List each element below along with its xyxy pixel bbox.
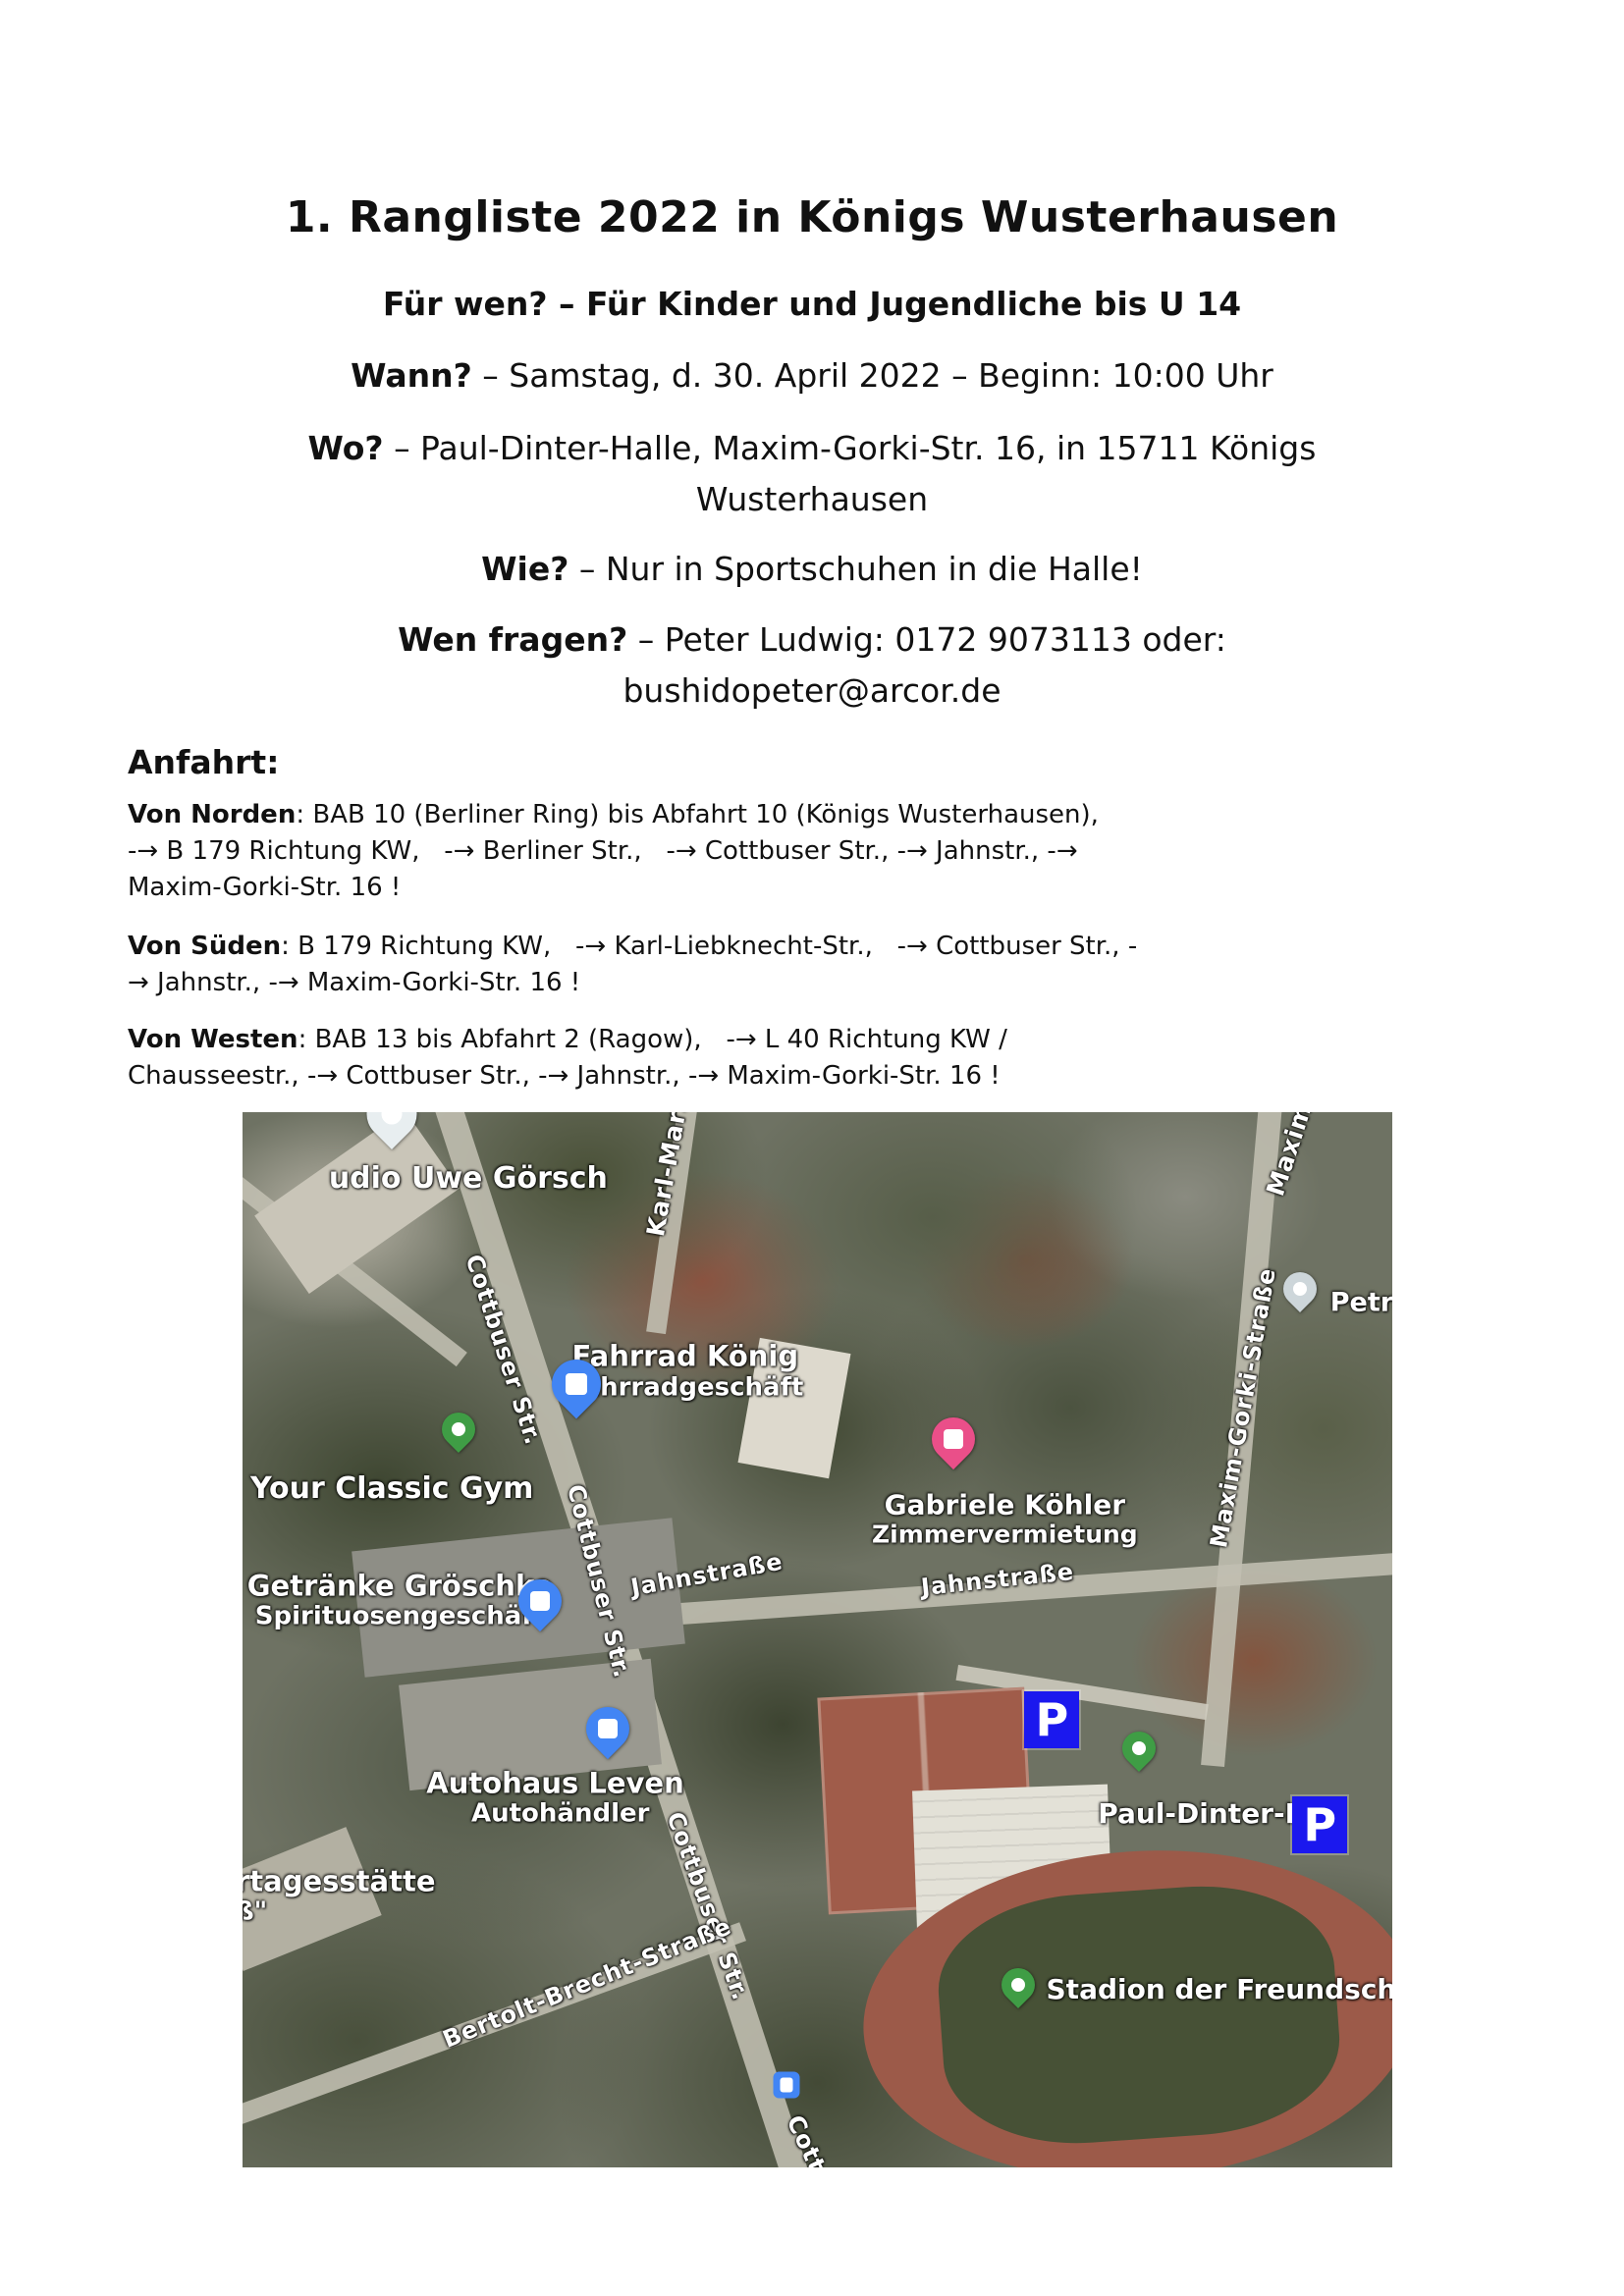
poi-subtitle: Spirituosengeschäft	[247, 1602, 553, 1631]
map-image: Karl-MarxMaximMaxim-Gorki-StraßeCottbuse…	[243, 1112, 1392, 2167]
poi-name: Stadion der Freundschaft	[1047, 1973, 1392, 2005]
petral-pin	[1283, 1272, 1317, 1306]
pin-bulb	[995, 1961, 1042, 2008]
poi-label-2: Your Classic Gym	[250, 1472, 533, 1507]
pin-dot	[1129, 1738, 1149, 1758]
poi-label-3: Petral	[1330, 1287, 1392, 1317]
poi-subtitle: Autohändler	[437, 1799, 684, 1829]
poi-name: Getränke Gröschke	[247, 1569, 553, 1602]
where-text: – Paul-Dinter-Halle, Maxim-Gorki-Str. 16…	[384, 429, 1317, 467]
poi-name: Autohaus Leven	[426, 1766, 683, 1799]
poi-subtitle: ß"	[243, 1897, 436, 1927]
shop-glyph	[598, 1719, 618, 1738]
event-title: 1. Rangliste 2022 in Königs Wusterhausen	[0, 192, 1624, 242]
pin-bulb	[1115, 1725, 1163, 1772]
poi-name: Gabriele Köhler	[885, 1488, 1125, 1521]
poi-subtitle: Fahrradgeschäft	[567, 1373, 803, 1403]
parking-marker-2: P	[1292, 1796, 1347, 1853]
getraenke-marker	[518, 1579, 562, 1623]
where-line: Wo? – Paul-Dinter-Halle, Maxim-Gorki-Str…	[0, 429, 1624, 467]
poi-name: udio Uwe Görsch	[329, 1160, 608, 1195]
audience-line: Für wen? – Für Kinder und Jugendliche bi…	[0, 285, 1624, 323]
route-south-label: Von Süden	[128, 932, 281, 961]
how-line: Wie? – Nur in Sportschuhen in die Halle!	[0, 550, 1624, 588]
poi-label-0: udio Uwe Görsch	[329, 1161, 608, 1196]
poi-name: Fahrrad König	[572, 1340, 799, 1373]
your-classic-gym-pin	[442, 1413, 475, 1446]
pin-bulb	[1276, 1264, 1324, 1311]
where-line-2: Wusterhausen	[0, 480, 1624, 518]
bus-glyph	[780, 2078, 792, 2093]
poi-name: rtagesstätte	[243, 1864, 436, 1897]
pin-dot	[1009, 1975, 1029, 1995]
contact-text: – Peter Ludwig: 0172 9073113 oder:	[627, 620, 1226, 659]
route-west-line-2: Chausseestr., -→ Cottbuser Str., -→ Jahn…	[128, 1061, 1001, 1091]
pin-dot	[1290, 1279, 1310, 1299]
when-label: Wann?	[351, 356, 472, 395]
when-line: Wann? – Samstag, d. 30. April 2022 – Beg…	[0, 356, 1624, 395]
pin-dot	[377, 1112, 406, 1129]
poi-subtitle: Zimmervermietung	[872, 1522, 1138, 1550]
shop-glyph	[530, 1591, 550, 1611]
when-text: – Samstag, d. 30. April 2022 – Beginn: 1…	[472, 356, 1273, 395]
studio-pin	[367, 1112, 417, 1140]
contact-line: Wen fragen? – Peter Ludwig: 0172 9073113…	[0, 620, 1624, 659]
poi-label-6: Autohaus LevenAutohändler	[426, 1767, 683, 1829]
autohaus-marker	[586, 1707, 629, 1750]
bus-stop-icon	[773, 2072, 799, 2099]
route-from-west: Von Westen: BAB 13 bis Abfahrt 2 (Ragow)…	[128, 1022, 1434, 1095]
pin-dot	[449, 1419, 468, 1439]
stadium-field	[933, 1877, 1346, 2153]
paul-dinter-pin	[1122, 1732, 1156, 1765]
shop-glyph	[566, 1373, 587, 1395]
stadion-pin	[1001, 1968, 1035, 2002]
parking-marker-1: P	[1024, 1691, 1079, 1748]
route-from-south: Von Süden: B 179 Richtung KW, -→ Karl-Li…	[128, 929, 1434, 1001]
flyer-page: { "header": { "title": "1. Rangliste 202…	[0, 0, 1624, 2296]
street-label-7: Cottbuser Str.	[661, 1809, 755, 2005]
route-north-line-3: Maxim-Gorki-Str. 16 !	[128, 873, 401, 902]
contact-email: bushidopeter@arcor.de	[0, 671, 1624, 710]
pin-bulb	[541, 1350, 611, 1419]
route-west-line-1: : BAB 13 bis Abfahrt 2 (Ragow), -→ L 40 …	[298, 1025, 1007, 1054]
poi-label-1: Fahrrad KönigFahrradgeschäft	[567, 1341, 803, 1403]
how-text: – Nur in Sportschuhen in die Halle!	[568, 550, 1142, 588]
where-label: Wo?	[308, 429, 384, 467]
poi-label-9: rtagesstätteß"	[243, 1865, 436, 1927]
directions-heading: Anfahrt:	[128, 743, 279, 781]
fahrrad-koenig-marker	[552, 1360, 601, 1409]
route-north-label: Von Norden	[128, 800, 296, 829]
pin-bulb	[923, 1409, 984, 1469]
gabriele-koehler-marker	[932, 1417, 975, 1461]
pin-bulb	[435, 1405, 482, 1452]
pin-bulb	[577, 1698, 638, 1759]
route-from-north: Von Norden: BAB 10 (Berliner Ring) bis A…	[128, 797, 1434, 906]
shop-glyph	[944, 1429, 963, 1449]
contact-label: Wen fragen?	[398, 620, 627, 659]
poi-label-8: Stadion der Freundschaft	[1047, 1974, 1392, 2005]
poi-name: Your Classic Gym	[250, 1471, 533, 1506]
street-label-8: Bertolt-Brecht-Straße	[439, 1912, 735, 2054]
route-west-label: Von Westen	[128, 1025, 298, 1054]
route-south-line-1: : B 179 Richtung KW, -→ Karl-Liebknecht-…	[281, 932, 1137, 961]
route-north-line-1: : BAB 10 (Berliner Ring) bis Abfahrt 10 …	[296, 800, 1099, 829]
how-label: Wie?	[481, 550, 568, 588]
route-south-line-2: → Jahnstr., -→ Maxim-Gorki-Str. 16 !	[128, 968, 580, 997]
poi-label-4: Gabriele KöhlerZimmervermietung	[872, 1489, 1138, 1549]
poi-name: Petral	[1330, 1287, 1392, 1317]
route-north-line-2: -→ B 179 Richtung KW, -→ Berliner Str., …	[128, 836, 1078, 866]
pin-bulb	[510, 1571, 570, 1631]
poi-label-5: Getränke GröschkeSpirituosengeschäft	[247, 1570, 553, 1631]
